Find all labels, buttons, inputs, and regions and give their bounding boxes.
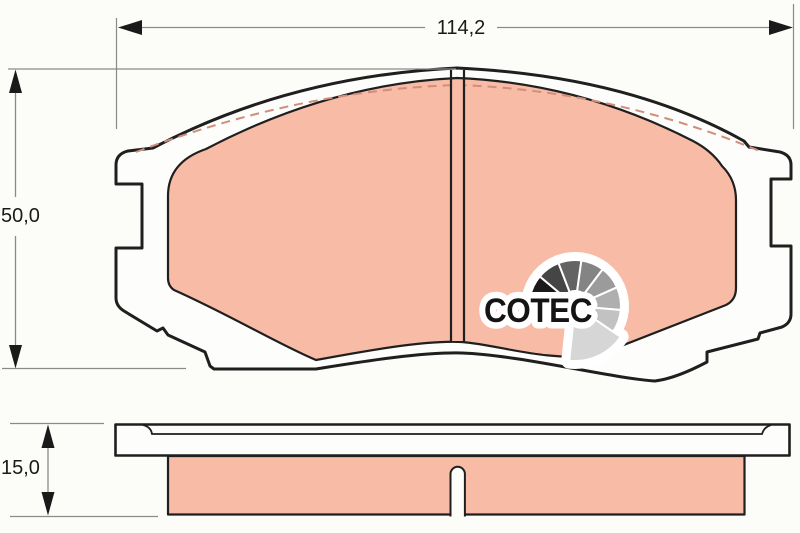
arrow-right-icon: [769, 20, 793, 35]
height-dimension-label: 50,0: [1, 205, 40, 227]
arrow-down-icon: [9, 345, 22, 369]
arrow-up-icon: [9, 70, 22, 94]
arrow-down-icon: [42, 492, 55, 516]
side-slot: [451, 467, 465, 517]
arrow-left-icon: [118, 20, 142, 35]
side-view: [116, 425, 790, 517]
thickness-dimension-label: 15,0: [1, 457, 40, 479]
front-view: [116, 68, 791, 381]
brake-pad-drawing: 114,2 50,0 15,0 COTEC: [0, 0, 800, 533]
centre-slot: [451, 70, 464, 342]
side-backing-plate: [116, 425, 790, 456]
cotec-logo-text: COTEC: [484, 292, 592, 330]
arrow-up-icon: [42, 425, 55, 449]
width-dimension-label: 114,2: [437, 17, 486, 39]
drawing-canvas: 114,2 50,0 15,0 COTEC: [0, 0, 800, 533]
